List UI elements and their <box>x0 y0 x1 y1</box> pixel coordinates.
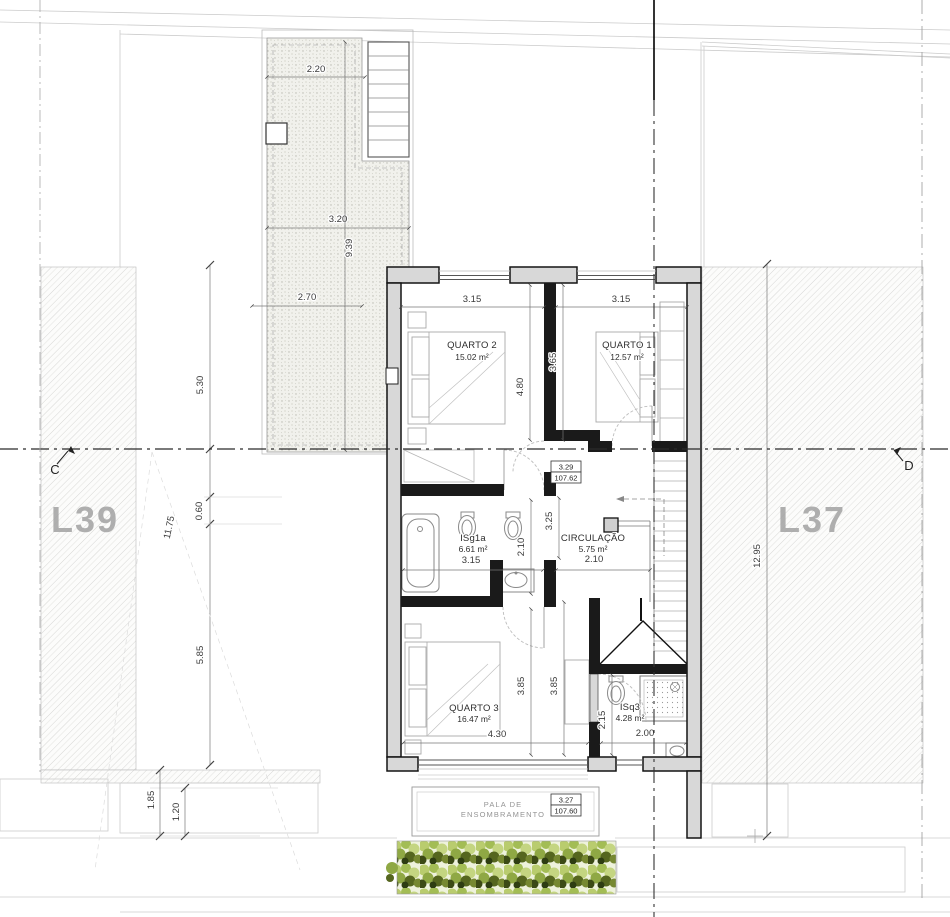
dim-left-upper: 5.30 <box>195 376 206 395</box>
dim-q3-height-b: 3.85 <box>549 677 560 696</box>
dim-hall-height: 3.25 <box>544 512 555 531</box>
level-upper-elevation: 107.62 <box>555 474 578 483</box>
dim-hall-width: 2.10 <box>585 554 604 565</box>
room-quarto3-name: QUARTO 3 <box>449 703 499 714</box>
level-upper-height: 3.29 <box>559 463 574 472</box>
level-marker-upper: 3.29 107.62 <box>551 461 581 483</box>
dim-isq3-width: 2.00 <box>636 728 655 739</box>
section-marker-d: D <box>904 458 913 473</box>
section-marker-c: C <box>50 462 59 477</box>
room-quarto2-area: 15.02 m² <box>455 352 489 362</box>
bedroom2-furniture <box>408 312 505 444</box>
canopy-label-line1: PALA DE <box>484 800 522 809</box>
dim-isq3-height: 2.15 <box>597 711 608 730</box>
floor-plan-drawing: 2.20 3.20 9.39 2.70 5.30 0.60 5.85 1.85 … <box>0 0 950 917</box>
dim-terrace-mid: 3.20 <box>329 214 348 225</box>
room-isq3-name: ISq3 <box>620 702 640 713</box>
dim-q3-height-a: 3.85 <box>516 677 527 696</box>
level-marker-canopy: 3.27 107.60 <box>551 794 581 816</box>
left-wall-niche <box>386 368 398 384</box>
dim-isg-height: 2.10 <box>516 538 527 557</box>
dim-q1-width: 3.15 <box>612 294 631 305</box>
room-quarto1-area: 12.57 m² <box>610 352 644 362</box>
room-isq3-area: 4.28 m² <box>616 713 645 723</box>
room-quarto2-name: QUARTO 2 <box>447 340 497 351</box>
dim-q3-width: 4.30 <box>488 729 507 740</box>
dim-right-total: 12.95 <box>752 544 763 568</box>
terrace-pillar <box>266 123 287 144</box>
dim-left-mid: 0.60 <box>194 502 205 521</box>
room-isg1a-area: 6.61 m² <box>459 544 488 554</box>
dim-isg-width: 3.15 <box>462 555 481 566</box>
level-canopy-elevation: 107.60 <box>555 807 578 816</box>
dim-left-total: 11.75 <box>162 515 178 540</box>
roof-access-ladder <box>368 42 409 157</box>
dim-q2-height: 4.80 <box>515 378 526 397</box>
dim-left-b1: 1.85 <box>146 791 157 810</box>
plot-hatch-bottom-strip <box>41 770 320 783</box>
dim-terrace-len: 9.39 <box>344 239 355 258</box>
floor-plan-page: 2.20 3.20 9.39 2.70 5.30 0.60 5.85 1.85 … <box>0 0 950 917</box>
dim-q1-height: 3.65 <box>548 353 559 372</box>
room-circulacao-name: CIRCULAÇÃO <box>561 533 625 544</box>
dim-left-lower: 5.85 <box>195 646 206 665</box>
plot-right-label: L37 <box>778 499 846 540</box>
hedge-planting <box>386 841 616 894</box>
dim-terrace-top: 2.20 <box>307 64 326 75</box>
dim-q2-width: 3.15 <box>463 294 482 305</box>
canopy-label-line2: ENSOMBRAMENTO <box>461 810 545 819</box>
dim-terrace-low: 2.70 <box>298 292 317 303</box>
room-quarto1-name: QUARTO 1 <box>602 340 652 351</box>
dim-left-b2: 1.20 <box>171 803 182 822</box>
room-quarto3-area: 16.47 m² <box>457 714 491 724</box>
hall-column <box>604 518 618 532</box>
room-isg1a-name: ISg1a <box>460 533 486 544</box>
room-circulacao-area: 5.75 m² <box>579 544 608 554</box>
level-canopy-height: 3.27 <box>559 796 574 805</box>
plot-left-label: L39 <box>51 499 119 540</box>
